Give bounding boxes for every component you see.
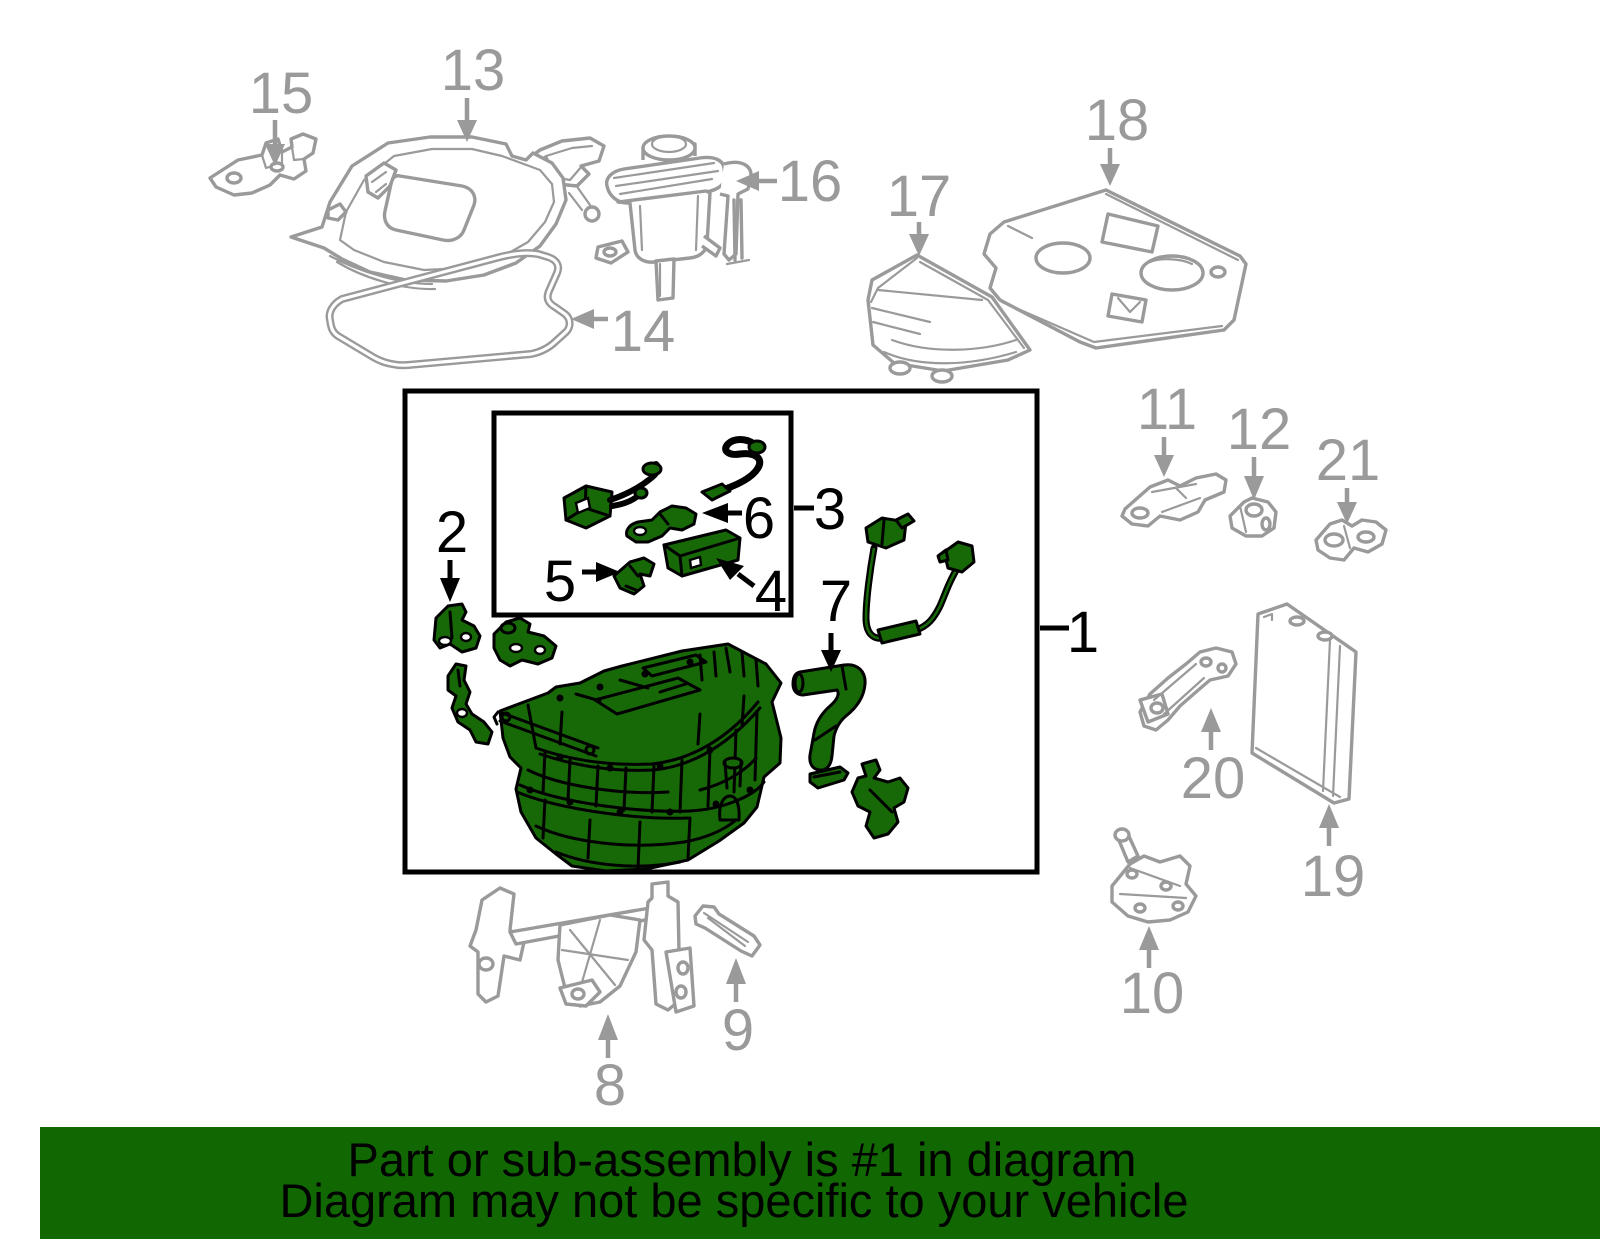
svg-text:15: 15 <box>249 61 314 126</box>
svg-text:11: 11 <box>1137 377 1197 442</box>
svg-text:3: 3 <box>814 477 846 542</box>
svg-text:8: 8 <box>594 1053 626 1118</box>
svg-text:16: 16 <box>778 149 843 214</box>
svg-text:12: 12 <box>1227 397 1292 462</box>
svg-text:21: 21 <box>1316 428 1381 493</box>
svg-text:2: 2 <box>436 500 468 565</box>
svg-text:14: 14 <box>611 299 676 364</box>
svg-text:9: 9 <box>722 998 754 1063</box>
svg-text:5: 5 <box>544 549 576 614</box>
svg-text:17: 17 <box>887 164 952 229</box>
svg-text:20: 20 <box>1181 746 1246 811</box>
svg-text:Diagram may not be specific to: Diagram may not be specific to your vehi… <box>279 1174 1188 1227</box>
svg-text:18: 18 <box>1085 88 1150 153</box>
svg-text:1: 1 <box>1067 600 1099 665</box>
svg-text:10: 10 <box>1120 961 1185 1026</box>
svg-text:6: 6 <box>743 486 775 551</box>
svg-text:13: 13 <box>441 38 506 103</box>
svg-text:7: 7 <box>820 569 852 634</box>
svg-text:19: 19 <box>1301 844 1366 909</box>
